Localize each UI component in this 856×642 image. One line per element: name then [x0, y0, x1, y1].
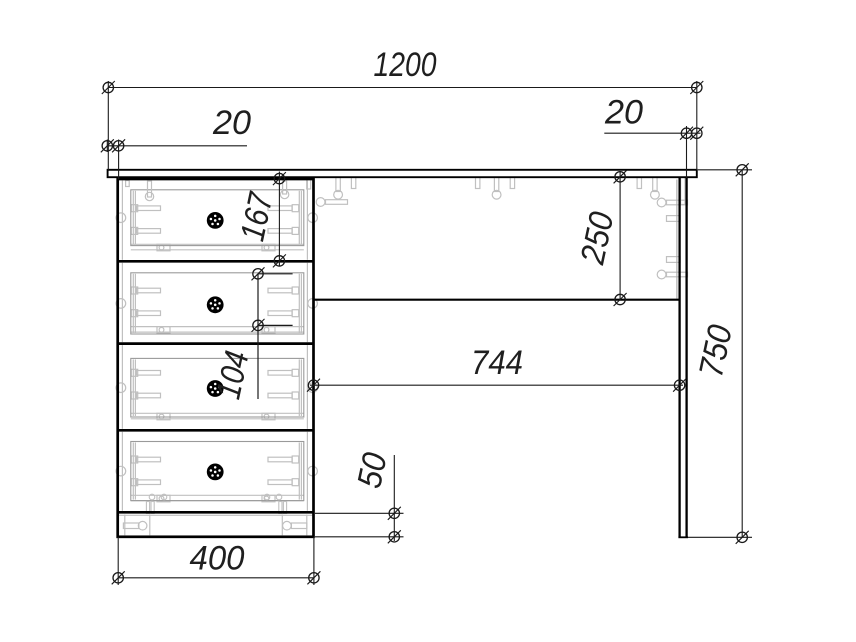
- svg-text:400: 400: [190, 540, 245, 578]
- svg-text:744: 744: [471, 344, 523, 382]
- svg-text:20: 20: [212, 104, 251, 142]
- svg-text:1200: 1200: [374, 46, 437, 84]
- svg-text:20: 20: [604, 94, 643, 132]
